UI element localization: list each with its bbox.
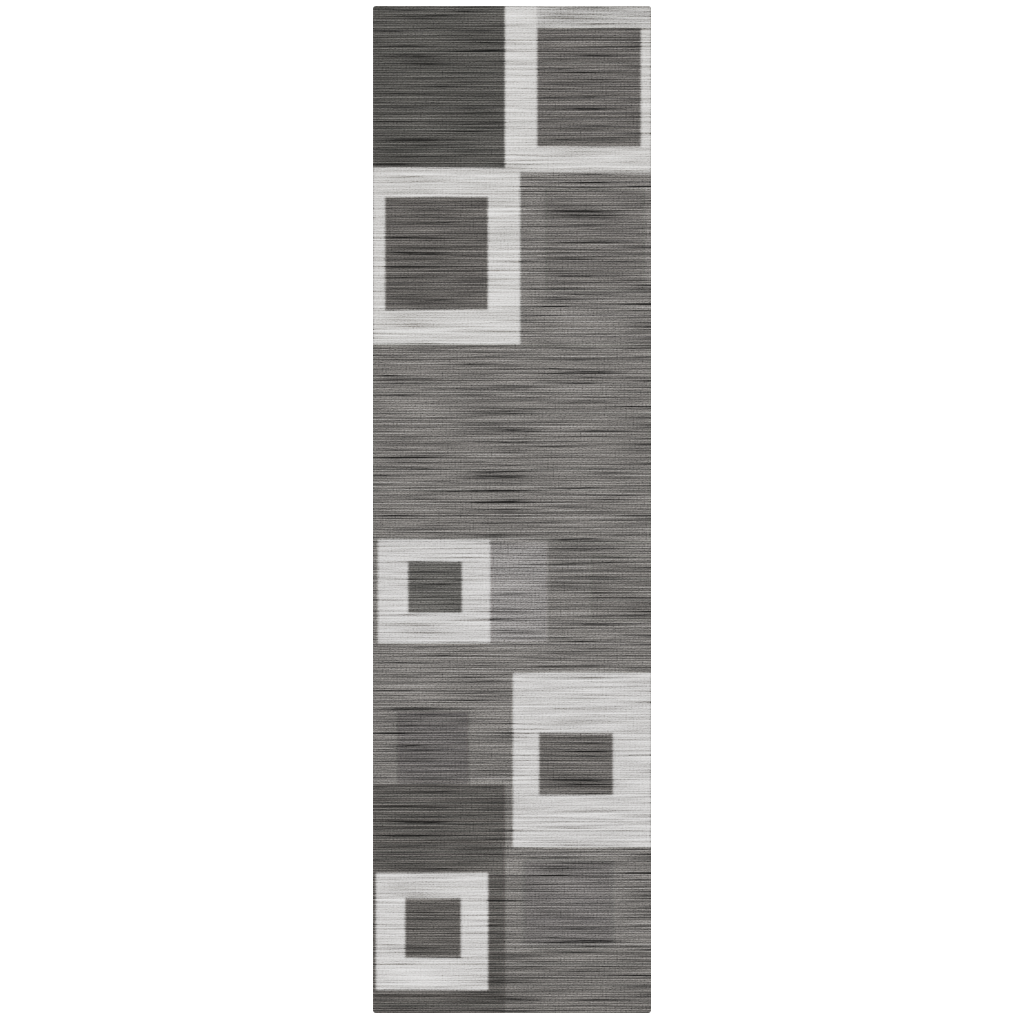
small-square-right-faint-light [490,540,548,643]
lower-right-inner-dark-square [539,733,613,795]
center-field-shade [373,344,651,544]
photo-background [0,0,1024,1024]
upper-right-faint-dark-square [545,188,645,292]
rug-blocks [373,6,651,1013]
bottom-right-bottom-shade [505,951,651,1013]
top-left-dark-block [373,6,505,169]
lower-left-faint-dark-square [397,711,469,791]
small-light-inner-dark-square [408,562,462,613]
mid-left-inner-dark-square [385,197,488,310]
top-right-inner-dark-square [537,28,641,147]
bottom-left-inner-dark-square [405,898,461,958]
rug [373,6,651,1013]
bottom-right-faint-dark-square [523,860,613,946]
top-right-top-strip [537,6,651,30]
mid-right-faint-dark-square [591,556,651,620]
